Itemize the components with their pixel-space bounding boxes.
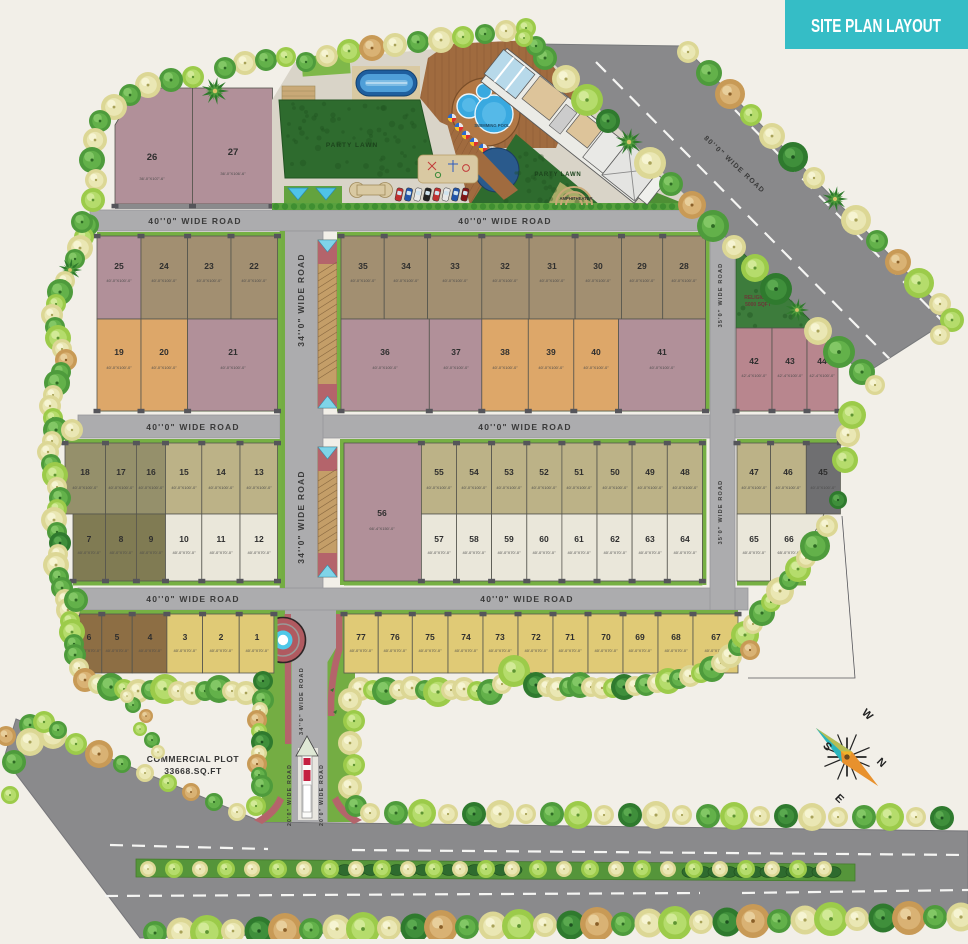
svg-text:40'-0"X70'-0": 40'-0"X70'-0" xyxy=(454,648,478,653)
svg-text:40'-0"X100'-0": 40'-0"X100'-0" xyxy=(496,485,522,490)
svg-text:36'-0"X106'-6": 36'-0"X106'-6" xyxy=(220,171,246,176)
svg-text:40'-0"X70'-0": 40'-0"X70'-0" xyxy=(532,550,556,555)
svg-text:9: 9 xyxy=(149,534,154,544)
svg-text:2: 2 xyxy=(219,632,224,642)
svg-text:77: 77 xyxy=(356,632,366,642)
svg-text:5: 5 xyxy=(115,632,120,642)
svg-text:29: 29 xyxy=(637,261,647,271)
svg-text:40'-0"X100'-0": 40'-0"X100'-0" xyxy=(492,278,518,283)
svg-text:42'-4"X100'-0": 42'-4"X100'-0" xyxy=(809,373,835,378)
svg-text:40'-0"X100'-0": 40'-0"X100'-0" xyxy=(637,485,663,490)
svg-text:40'-0"X70'-0": 40'-0"X70'-0" xyxy=(349,648,373,653)
svg-text:55: 55 xyxy=(434,467,444,477)
svg-text:25: 25 xyxy=(114,261,124,271)
svg-text:40'-0"X100'-0": 40'-0"X100'-0" xyxy=(538,365,564,370)
svg-text:15: 15 xyxy=(179,467,189,477)
svg-text:4: 4 xyxy=(148,632,153,642)
svg-text:40'-0"X70'-0": 40'-0"X70'-0" xyxy=(742,550,766,555)
svg-text:42: 42 xyxy=(749,356,759,366)
svg-text:67: 67 xyxy=(711,632,721,642)
svg-text:40'-0"X100'-0": 40'-0"X100'-0" xyxy=(566,485,592,490)
svg-text:53: 53 xyxy=(504,467,514,477)
svg-text:8: 8 xyxy=(119,534,124,544)
svg-text:40'-0"X100'-0": 40'-0"X100'-0" xyxy=(350,278,376,283)
svg-text:PARTY LAWN: PARTY LAWN xyxy=(326,142,378,149)
svg-text:40'-0"X100'-0": 40'-0"X100'-0" xyxy=(208,485,234,490)
svg-text:39: 39 xyxy=(546,347,556,357)
svg-text:31: 31 xyxy=(547,261,557,271)
svg-text:40'-0"X100'-0": 40'-0"X100'-0" xyxy=(372,365,398,370)
svg-text:23: 23 xyxy=(204,261,214,271)
svg-text:40'-0"X100'-0": 40'-0"X100'-0" xyxy=(443,365,469,370)
svg-text:40'-0"X100'-0": 40'-0"X100'-0" xyxy=(775,485,801,490)
svg-text:40''0" WIDE ROAD: 40''0" WIDE ROAD xyxy=(146,422,239,432)
svg-text:40'-0"X100'-0": 40'-0"X100'-0" xyxy=(108,485,134,490)
svg-text:57: 57 xyxy=(434,534,444,544)
svg-text:40'-0"X70'-0": 40'-0"X70'-0" xyxy=(638,550,662,555)
svg-text:14: 14 xyxy=(216,467,226,477)
svg-text:35'0" WIDE ROAD: 35'0" WIDE ROAD xyxy=(718,263,724,328)
svg-text:33668.SQ.FT: 33668.SQ.FT xyxy=(164,766,222,776)
svg-text:40: 40 xyxy=(591,347,601,357)
svg-text:40'-0"X100'-0": 40'-0"X100'-0" xyxy=(106,365,132,370)
svg-text:3: 3 xyxy=(183,632,188,642)
svg-text:40'-0"X70'-0": 40'-0"X70'-0" xyxy=(173,648,197,653)
svg-text:40'-0"X100'-0": 40'-0"X100'-0" xyxy=(246,485,272,490)
svg-text:50: 50 xyxy=(610,467,620,477)
svg-text:40'-0"X100'-0": 40'-0"X100'-0" xyxy=(138,485,164,490)
svg-text:PARTY LAWN: PARTY LAWN xyxy=(534,172,581,178)
svg-text:11: 11 xyxy=(217,534,226,544)
svg-text:40'-0"X100'-0": 40'-0"X100'-0" xyxy=(531,485,557,490)
svg-text:36: 36 xyxy=(380,347,390,357)
svg-text:40''0" WIDE ROAD: 40''0" WIDE ROAD xyxy=(480,594,573,604)
svg-text:62: 62 xyxy=(610,534,620,544)
svg-text:40'-0"X70'-0": 40'-0"X70'-0" xyxy=(497,550,521,555)
svg-text:40''0" WIDE ROAD: 40''0" WIDE ROAD xyxy=(478,422,571,432)
svg-text:36'-0"X107'-6": 36'-0"X107'-6" xyxy=(139,176,165,181)
svg-text:40'-0"X70'-0": 40'-0"X70'-0" xyxy=(383,648,407,653)
svg-text:40'-0"X100'-0": 40'-0"X100'-0" xyxy=(492,365,518,370)
svg-text:40'-0"X100'-0": 40'-0"X100'-0" xyxy=(741,485,767,490)
svg-text:35'0" WIDE ROAD: 35'0" WIDE ROAD xyxy=(718,480,724,545)
svg-text:40'-0"X70'-0": 40'-0"X70'-0" xyxy=(664,648,688,653)
svg-text:70: 70 xyxy=(601,632,611,642)
svg-text:75: 75 xyxy=(425,632,435,642)
svg-text:22: 22 xyxy=(249,261,259,271)
svg-text:74: 74 xyxy=(461,632,471,642)
svg-text:20'0" WIDE ROAD: 20'0" WIDE ROAD xyxy=(319,764,325,826)
svg-text:40'-0"X100'-0": 40'-0"X100'-0" xyxy=(220,365,246,370)
svg-text:7: 7 xyxy=(87,534,92,544)
svg-text:66'-4"X150'-0": 66'-4"X150'-0" xyxy=(369,526,395,531)
svg-text:40'-0"X70'-0": 40'-0"X70'-0" xyxy=(209,648,233,653)
svg-text:40'-0"X70'-0": 40'-0"X70'-0" xyxy=(524,648,548,653)
svg-text:47: 47 xyxy=(749,467,759,477)
svg-text:58: 58 xyxy=(469,534,479,544)
svg-text:26: 26 xyxy=(147,152,158,163)
svg-text:40'-0"X100'-0": 40'-0"X100'-0" xyxy=(539,278,565,283)
svg-text:40'-0"X100'-0": 40'-0"X100'-0" xyxy=(602,485,628,490)
svg-text:34: 34 xyxy=(401,261,411,271)
svg-text:19: 19 xyxy=(114,347,124,357)
svg-text:68: 68 xyxy=(671,632,681,642)
svg-text:73: 73 xyxy=(495,632,505,642)
svg-text:40'-0"X70'-0": 40'-0"X70'-0" xyxy=(462,550,486,555)
svg-text:40'-0"X70'-0": 40'-0"X70'-0" xyxy=(558,648,582,653)
svg-text:40'-0"X100'-0": 40'-0"X100'-0" xyxy=(649,365,675,370)
svg-text:41: 41 xyxy=(657,347,667,357)
svg-text:54: 54 xyxy=(469,467,479,477)
svg-text:35: 35 xyxy=(358,261,368,271)
svg-text:40'-0"X70'-0": 40'-0"X70'-0" xyxy=(138,648,162,653)
svg-text:65: 65 xyxy=(749,534,759,544)
svg-text:40'-0"X70'-0": 40'-0"X70'-0" xyxy=(488,648,512,653)
svg-text:40'-0"X70'-0": 40'-0"X70'-0" xyxy=(418,648,442,653)
svg-text:20'0" WIDE ROAD: 20'0" WIDE ROAD xyxy=(287,764,293,826)
svg-text:40'-0"X100'-0": 40'-0"X100'-0" xyxy=(461,485,487,490)
svg-text:40'-0"X100'-0": 40'-0"X100'-0" xyxy=(151,278,177,283)
svg-text:40''0" WIDE ROAD: 40''0" WIDE ROAD xyxy=(146,594,239,604)
svg-text:40'-0"X100'-0": 40'-0"X100'-0" xyxy=(671,278,697,283)
svg-text:21: 21 xyxy=(228,347,238,357)
svg-text:33: 33 xyxy=(450,261,460,271)
svg-text:30: 30 xyxy=(593,261,603,271)
svg-text:12: 12 xyxy=(254,534,264,544)
svg-text:64: 64 xyxy=(680,534,690,544)
svg-text:59: 59 xyxy=(504,534,514,544)
svg-text:40'-0"X100'-0": 40'-0"X100'-0" xyxy=(151,365,177,370)
svg-text:40''0" WIDE ROAD: 40''0" WIDE ROAD xyxy=(148,216,241,226)
svg-text:72: 72 xyxy=(531,632,541,642)
svg-text:34''0" WIDE ROAD: 34''0" WIDE ROAD xyxy=(299,667,305,735)
svg-text:40''0" WIDE ROAD: 40''0" WIDE ROAD xyxy=(458,216,551,226)
svg-text:43: 43 xyxy=(785,356,795,366)
svg-text:40'-0"X100'-0": 40'-0"X100'-0" xyxy=(196,278,222,283)
svg-text:40'-0"X70'-0": 40'-0"X70'-0" xyxy=(567,550,591,555)
svg-text:40'-0"X100'-0": 40'-0"X100'-0" xyxy=(426,485,452,490)
svg-text:SITE PLAN LAYOUT: SITE PLAN LAYOUT xyxy=(811,16,941,36)
svg-text:20: 20 xyxy=(159,347,169,357)
svg-text:45: 45 xyxy=(818,467,828,477)
svg-text:40'-0"X100'-0": 40'-0"X100'-0" xyxy=(171,485,197,490)
svg-text:56: 56 xyxy=(377,508,387,518)
svg-text:63: 63 xyxy=(645,534,655,544)
svg-text:40'-0"X70'-0": 40'-0"X70'-0" xyxy=(673,550,697,555)
svg-text:49: 49 xyxy=(645,467,655,477)
svg-text:40'-0"X100'-0": 40'-0"X100'-0" xyxy=(393,278,419,283)
svg-text:34''0" WIDE ROAD: 34''0" WIDE ROAD xyxy=(296,470,306,563)
svg-text:40'-0"X100'-0": 40'-0"X100'-0" xyxy=(629,278,655,283)
svg-text:18: 18 xyxy=(80,467,90,477)
svg-text:40'-0"X100'-0": 40'-0"X100'-0" xyxy=(672,485,698,490)
svg-text:13: 13 xyxy=(254,467,264,477)
svg-text:6: 6 xyxy=(87,632,92,642)
svg-text:34''0" WIDE ROAD: 34''0" WIDE ROAD xyxy=(296,253,306,346)
svg-text:32: 32 xyxy=(500,261,510,271)
svg-text:38: 38 xyxy=(500,347,510,357)
svg-text:40'-0"X70'-0": 40'-0"X70'-0" xyxy=(427,550,451,555)
svg-text:37: 37 xyxy=(451,347,461,357)
svg-text:10: 10 xyxy=(179,534,189,544)
svg-text:40'-0"X70'-0": 40'-0"X70'-0" xyxy=(594,648,618,653)
svg-text:17: 17 xyxy=(116,467,126,477)
svg-text:40'-0"X70'-0": 40'-0"X70'-0" xyxy=(209,550,233,555)
svg-text:28: 28 xyxy=(679,261,689,271)
svg-text:40'-0"X100'-0": 40'-0"X100'-0" xyxy=(72,485,98,490)
svg-text:61: 61 xyxy=(574,534,584,544)
svg-text:60: 60 xyxy=(539,534,549,544)
svg-text:40'-0"X70'-0": 40'-0"X70'-0" xyxy=(139,550,163,555)
svg-text:46: 46 xyxy=(783,467,793,477)
svg-text:69: 69 xyxy=(635,632,645,642)
svg-text:40'-0"X70'-0": 40'-0"X70'-0" xyxy=(245,648,269,653)
svg-text:40'-0"X70'-0": 40'-0"X70'-0" xyxy=(105,648,129,653)
svg-text:52: 52 xyxy=(539,467,549,477)
svg-text:40'-0"X100'-0": 40'-0"X100'-0" xyxy=(810,485,836,490)
svg-text:40'-0"X70'-0": 40'-0"X70'-0" xyxy=(77,550,101,555)
svg-text:40'-0"X70'-0": 40'-0"X70'-0" xyxy=(247,550,271,555)
svg-text:40'-0"X100'-0": 40'-0"X100'-0" xyxy=(442,278,468,283)
svg-text:51: 51 xyxy=(574,467,584,477)
svg-text:42'-4"X100'-0": 42'-4"X100'-0" xyxy=(741,373,767,378)
svg-text:40'-0"X100'-0": 40'-0"X100'-0" xyxy=(583,365,609,370)
svg-text:40'-0"X70'-0": 40'-0"X70'-0" xyxy=(172,550,196,555)
svg-text:SWIMMING POOL: SWIMMING POOL xyxy=(474,123,510,128)
svg-text:AMPHITHEATER: AMPHITHEATER xyxy=(560,196,593,201)
svg-text:40'-0"X100'-0": 40'-0"X100'-0" xyxy=(106,278,132,283)
svg-text:5000 SQFT: 5000 SQFT xyxy=(745,302,771,308)
svg-text:27: 27 xyxy=(228,147,239,158)
svg-text:71: 71 xyxy=(565,632,575,642)
svg-text:40'-0"X100'-0": 40'-0"X100'-0" xyxy=(585,278,611,283)
svg-text:40'-0"X70'-0": 40'-0"X70'-0" xyxy=(628,648,652,653)
svg-text:1: 1 xyxy=(255,632,260,642)
svg-text:16: 16 xyxy=(146,467,156,477)
svg-text:40'-0"X100'-0": 40'-0"X100'-0" xyxy=(241,278,267,283)
svg-text:76: 76 xyxy=(390,632,400,642)
svg-text:40'-0"X70'-0": 40'-0"X70'-0" xyxy=(109,550,133,555)
svg-text:66: 66 xyxy=(784,534,794,544)
svg-text:48: 48 xyxy=(680,467,690,477)
svg-text:24: 24 xyxy=(159,261,169,271)
svg-text:42'-4"X100'-0": 42'-4"X100'-0" xyxy=(777,373,803,378)
svg-text:40'-0"X70'-0": 40'-0"X70'-0" xyxy=(603,550,627,555)
